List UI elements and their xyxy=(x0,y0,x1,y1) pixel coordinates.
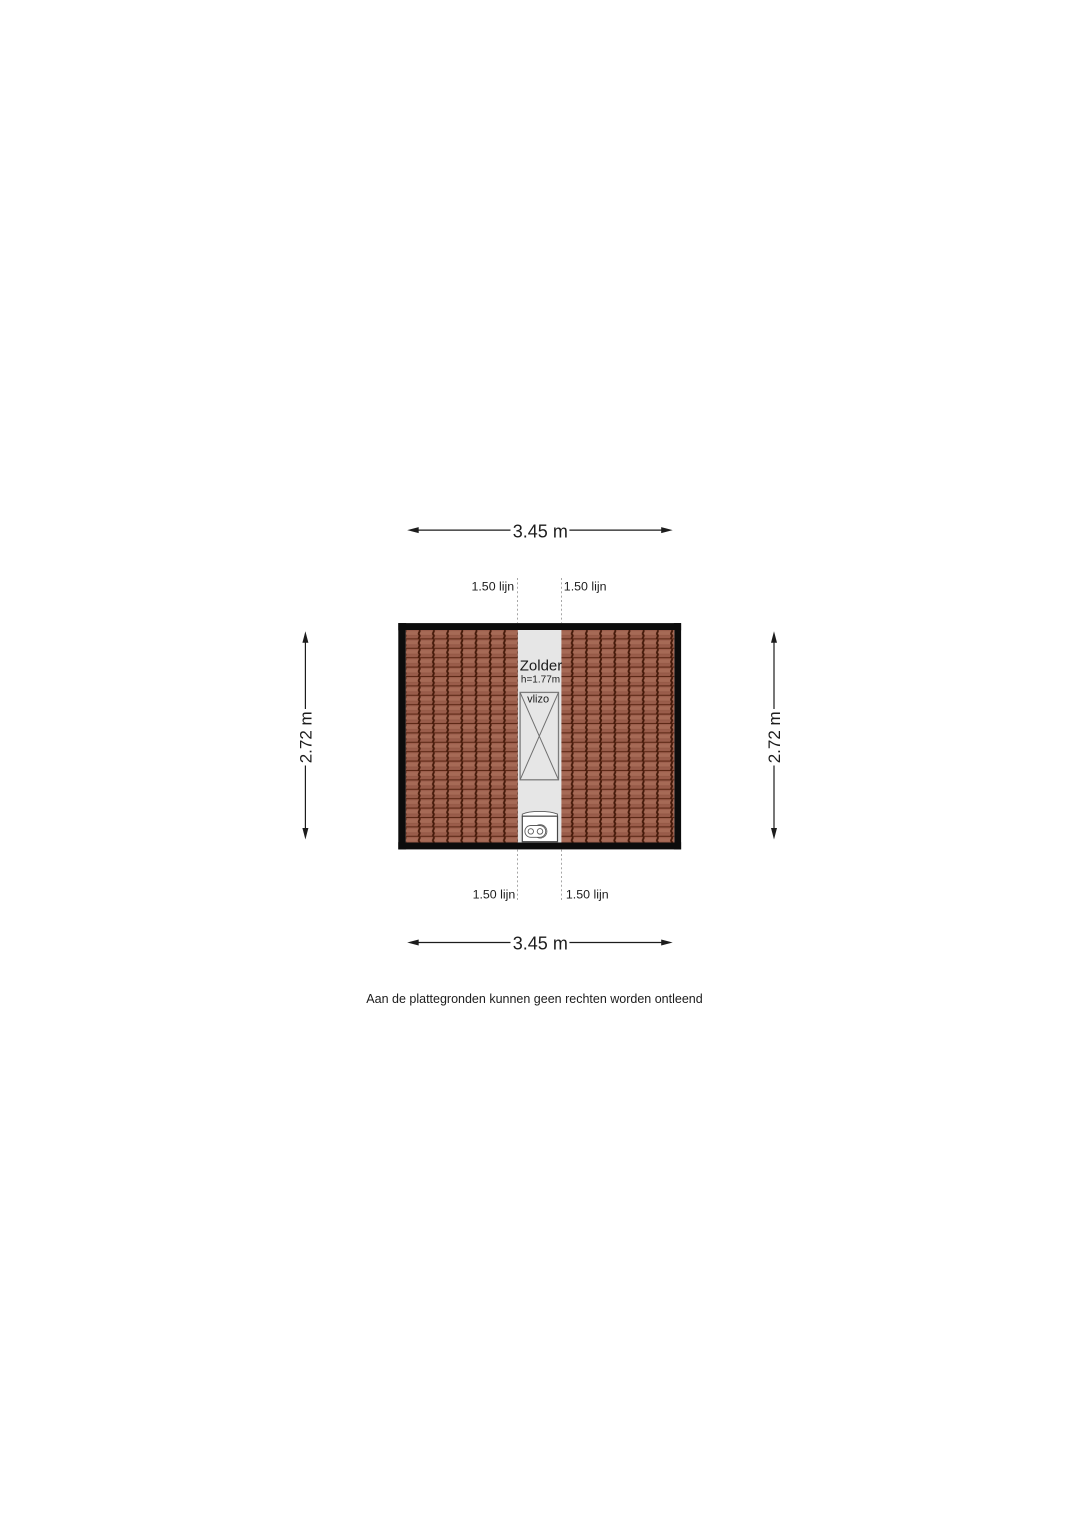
svg-text:1.50 lijn: 1.50 lijn xyxy=(566,888,609,902)
svg-text:h=1.77m: h=1.77m xyxy=(521,675,560,686)
svg-text:1.50 lijn: 1.50 lijn xyxy=(471,580,514,594)
svg-text:2.72 m: 2.72 m xyxy=(297,711,316,763)
svg-text:1.50 lijn: 1.50 lijn xyxy=(473,888,516,902)
svg-text:Zolder: Zolder xyxy=(520,657,563,674)
svg-text:vlizo: vlizo xyxy=(527,694,549,706)
svg-text:2.72 m: 2.72 m xyxy=(765,711,784,763)
svg-text:Aan de plattegronden kunnen ge: Aan de plattegronden kunnen geen rechten… xyxy=(366,992,702,1006)
svg-text:3.45 m: 3.45 m xyxy=(513,933,568,953)
svg-text:3.45 m: 3.45 m xyxy=(513,521,568,541)
svg-text:1.50 lijn: 1.50 lijn xyxy=(564,580,607,594)
